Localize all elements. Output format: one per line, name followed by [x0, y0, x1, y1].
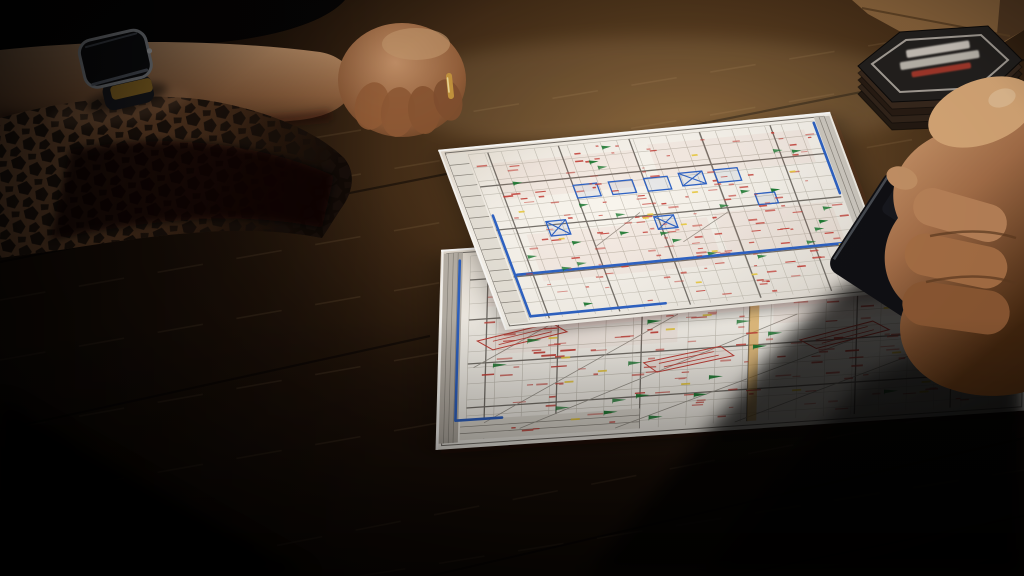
lighting	[0, 0, 1024, 576]
photo-scene	[0, 0, 1024, 576]
scene-canvas	[0, 0, 1024, 576]
